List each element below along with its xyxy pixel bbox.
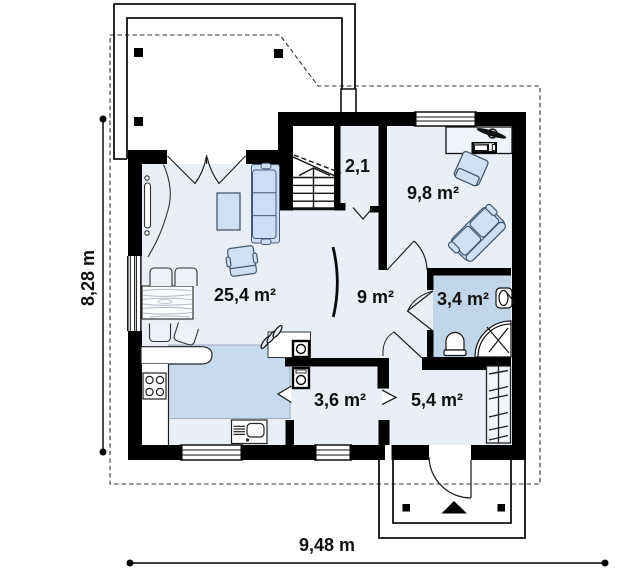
svg-text:5,4 m²: 5,4 m² [411, 390, 463, 410]
svg-text:2,1: 2,1 [345, 156, 370, 176]
svg-text:3,6 m²: 3,6 m² [314, 390, 366, 410]
svg-text:3,4 m²: 3,4 m² [437, 289, 489, 309]
svg-text:9,48 m: 9,48 m [299, 535, 355, 555]
svg-text:25,4 m²: 25,4 m² [214, 285, 276, 305]
svg-text:8,28 m: 8,28 m [78, 250, 98, 306]
svg-text:9 m²: 9 m² [357, 287, 394, 307]
svg-text:9,8 m²: 9,8 m² [407, 183, 459, 203]
